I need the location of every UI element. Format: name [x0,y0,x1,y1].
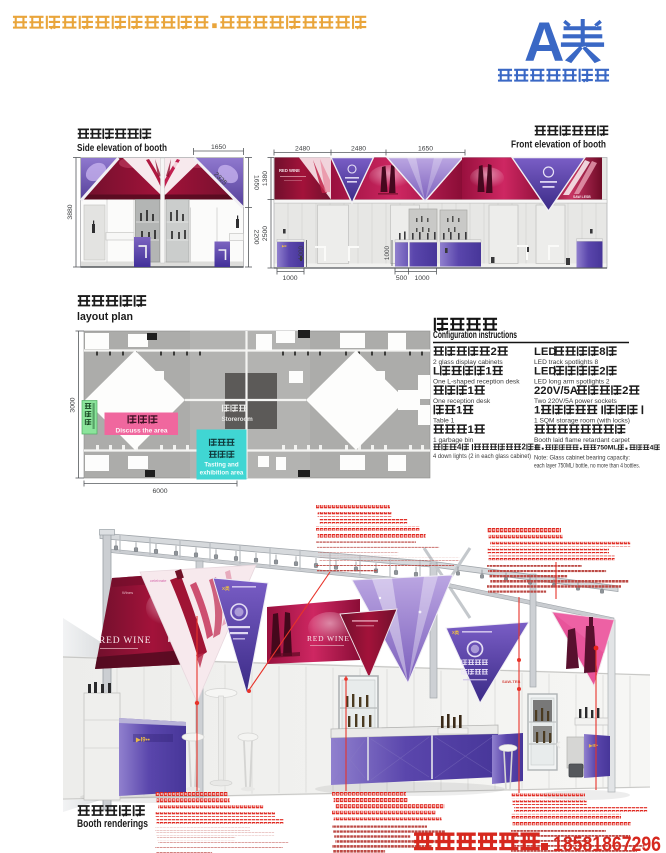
svg-text:1: 1 [485,365,491,377]
svg-text:1: 1 [468,424,474,436]
svg-text:▶I9••: ▶I9•• [135,737,150,744]
svg-text:SAW-TEB: SAW-TEB [502,679,520,684]
svg-text:▶I9: ▶I9 [281,244,287,248]
svg-text:1000: 1000 [282,275,297,282]
svg-text:4: 4 [650,445,654,452]
svg-text:2480: 2480 [351,146,366,153]
svg-text:2 glass display cabinets: 2 glass display cabinets [433,359,503,366]
svg-text:Table 1: Table 1 [433,418,455,425]
svg-text:Configuration instructions: Configuration instructions [433,330,517,341]
svg-text:LED: LED [534,346,557,358]
svg-text:1650: 1650 [418,146,433,153]
svg-text:1 garbage bin: 1 garbage bin [433,437,474,444]
svg-text:2500: 2500 [262,226,269,241]
svg-text:1650: 1650 [211,144,226,151]
svg-text:layout plan: layout plan [77,311,133,323]
svg-text:6000: 6000 [152,488,167,495]
svg-text:SAW LESB: SAW LESB [573,195,591,199]
svg-text:▶I9•: ▶I9• [588,743,598,748]
svg-text:RED WINE: RED WINE [279,168,300,173]
svg-text:Side elevation of booth: Side elevation of booth [77,142,167,154]
svg-text:1650: 1650 [253,175,260,190]
svg-text:1: 1 [456,404,462,416]
svg-text:750ML/: 750ML/ [597,445,620,452]
svg-text:A: A [524,10,564,73]
svg-text:220V/5A: 220V/5A [534,385,578,397]
svg-text:RED WINE: RED WINE [307,634,350,643]
svg-text:3000: 3000 [70,397,77,412]
svg-text:X类: X类 [222,585,230,592]
svg-text:4: 4 [457,443,462,452]
svg-text:2: 2 [491,346,497,358]
svg-text:2480: 2480 [295,146,310,153]
svg-text:Wines: Wines [122,590,133,595]
svg-text:2200: 2200 [253,229,260,244]
svg-text:Tasting and: Tasting and [204,462,238,469]
svg-text:L: L [433,365,440,377]
svg-text:1 SQM storage room (with locks: 1 SQM storage room (with locks) [534,418,630,425]
svg-text:2: 2 [522,443,527,452]
svg-text:18581867296: 18581867296 [553,832,661,853]
svg-text:1000: 1000 [298,245,305,260]
svg-text:2: 2 [599,365,605,377]
svg-text:1: 1 [534,404,540,416]
svg-text:1: 1 [468,385,474,397]
svg-text:Storeroom: Storeroom [222,416,254,423]
svg-text:One L-shaped reception desk: One L-shaped reception desk [433,379,520,386]
svg-text:8: 8 [599,346,605,358]
svg-text:celebrate: celebrate [150,578,167,583]
svg-text:2: 2 [622,385,628,397]
svg-text:1000: 1000 [384,245,391,260]
svg-text:1000: 1000 [414,275,429,282]
svg-text:Booth renderings: Booth renderings [77,818,148,830]
svg-text:Discuss the area: Discuss the area [116,428,168,435]
svg-text:4 down lights (2 in each glass: 4 down lights (2 in each glass cabinet) [433,453,531,460]
svg-text:500: 500 [396,275,408,282]
svg-text:RED WINE: RED WINE [99,636,151,646]
svg-text:Two 220V/5A power sockets: Two 220V/5A power sockets [534,398,618,405]
svg-text:exhibition area: exhibition area [200,470,244,477]
svg-text:X类: X类 [452,629,460,636]
svg-text:1380: 1380 [262,171,269,186]
svg-text:Front elevation of booth: Front elevation of booth [511,139,606,151]
svg-text:each layer 750ML/ bottle, no m: each layer 750ML/ bottle, no more than 4… [534,463,640,470]
svg-text:LED: LED [534,365,557,377]
svg-text:Note: Glass cabinet bearing ca: Note: Glass cabinet bearing capacity: [534,455,630,462]
svg-text:3880: 3880 [67,204,74,219]
svg-text:Booth laid flame retardant car: Booth laid flame retardant carpet [534,437,630,444]
